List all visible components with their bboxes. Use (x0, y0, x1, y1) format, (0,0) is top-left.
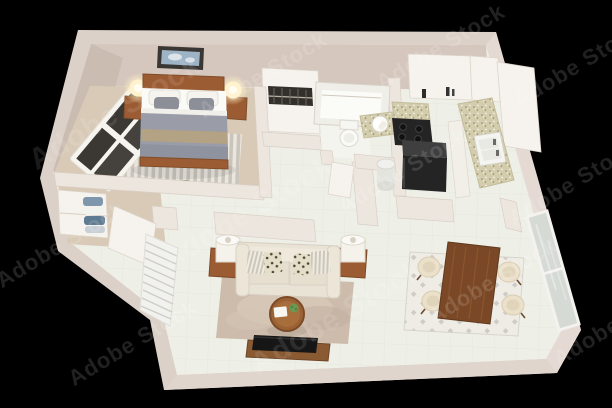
stove-backsplash-counter (392, 102, 430, 120)
water-heater (377, 159, 395, 191)
towel-gray (85, 226, 105, 233)
faucet-1 (493, 139, 496, 145)
book (274, 306, 288, 317)
gray-pillow-right (189, 98, 214, 111)
upper-cabinet-2 (470, 56, 500, 102)
toilet (340, 120, 358, 147)
heater-top (377, 159, 395, 169)
bottle-2 (452, 89, 455, 96)
tv-area (246, 335, 330, 361)
leopard-pillow-left (263, 251, 283, 273)
towel-navy (84, 216, 105, 225)
kitchen-south-wall (396, 196, 454, 222)
sofa (236, 242, 340, 298)
leopard-pillow-right (292, 253, 312, 275)
bottle-3 (422, 89, 426, 98)
coffee-table (270, 297, 304, 331)
vanity-sink (360, 112, 396, 138)
tall-pantry-cabinet (497, 62, 541, 152)
floor-plan-svg (0, 0, 612, 408)
faucet-2 (496, 150, 499, 156)
drum-lamp-right (341, 235, 365, 262)
floor-plan-render: Adobe Stock Adobe Stock Adobe Stock Adob… (0, 0, 612, 408)
linen-closet (58, 190, 108, 238)
towel-white (84, 207, 104, 215)
bottle-1 (446, 87, 450, 96)
gray-pillow-left (154, 97, 179, 110)
striped-pillow-left (246, 250, 267, 275)
lamp-right-hotspot (229, 86, 237, 94)
dining-table (438, 242, 500, 324)
potted-plant (290, 304, 299, 313)
double-bed (140, 74, 228, 169)
refrigerator (402, 140, 447, 192)
striped-pillow-right (310, 250, 331, 275)
heater-base (377, 181, 395, 191)
lamp-left-hotspot (134, 84, 142, 92)
bathroom-door-open (328, 162, 354, 198)
wall-art (157, 46, 204, 70)
upper-cabinet-1 (408, 54, 472, 100)
towel-blue (83, 197, 103, 206)
kitchen-sink (474, 132, 506, 166)
